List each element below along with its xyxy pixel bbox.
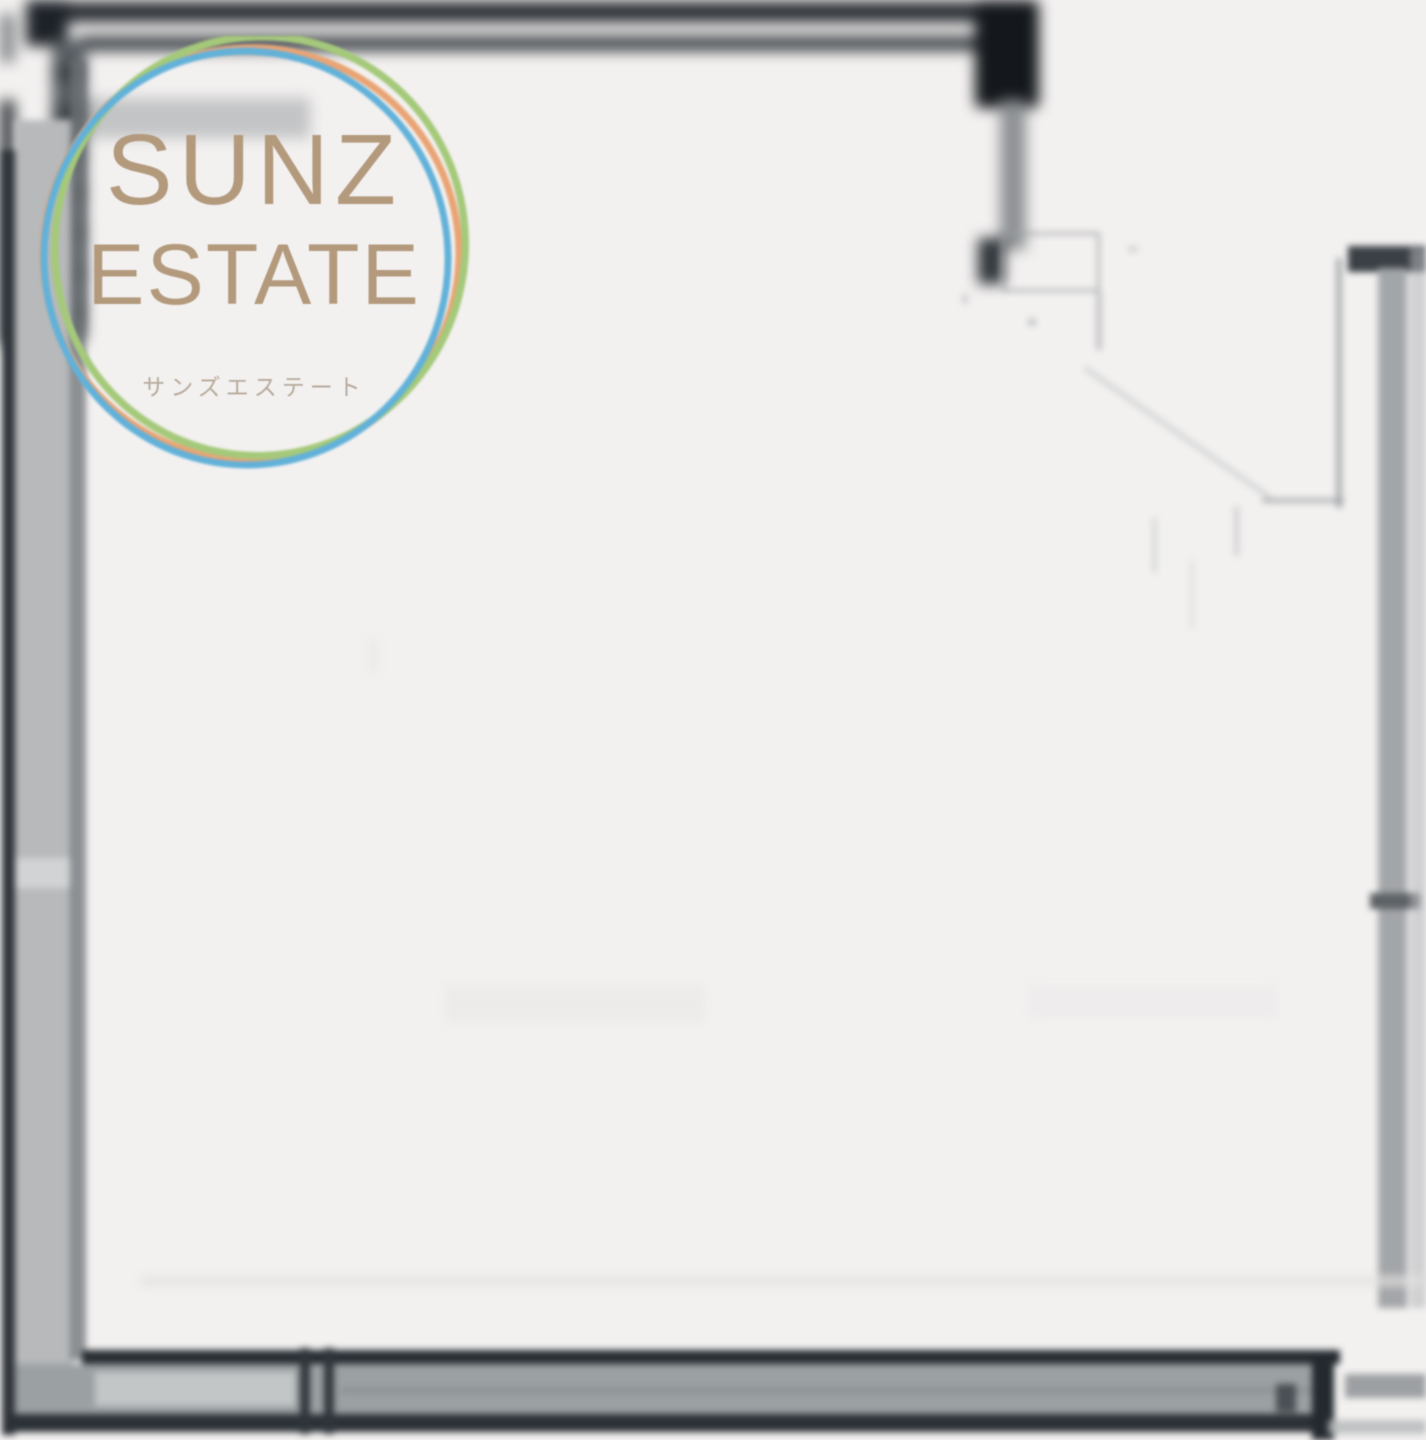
floor-faint-rect-1 bbox=[445, 985, 705, 1023]
floor-faint-rect-2 bbox=[1028, 985, 1278, 1019]
floor-shadow-line bbox=[140, 1277, 1426, 1285]
brand-logo: SUNZ ESTATE サンズエステート bbox=[38, 36, 470, 472]
brand-subtitle-japanese: サンズエステート bbox=[38, 376, 470, 399]
floor-plan-image: { "brand": { "name_line1": "SUNZ", "name… bbox=[0, 0, 1426, 1440]
floor-faint-mark bbox=[368, 638, 378, 674]
brand-name-line1: SUNZ bbox=[38, 120, 470, 220]
brand-name-line2: ESTATE bbox=[38, 232, 470, 318]
